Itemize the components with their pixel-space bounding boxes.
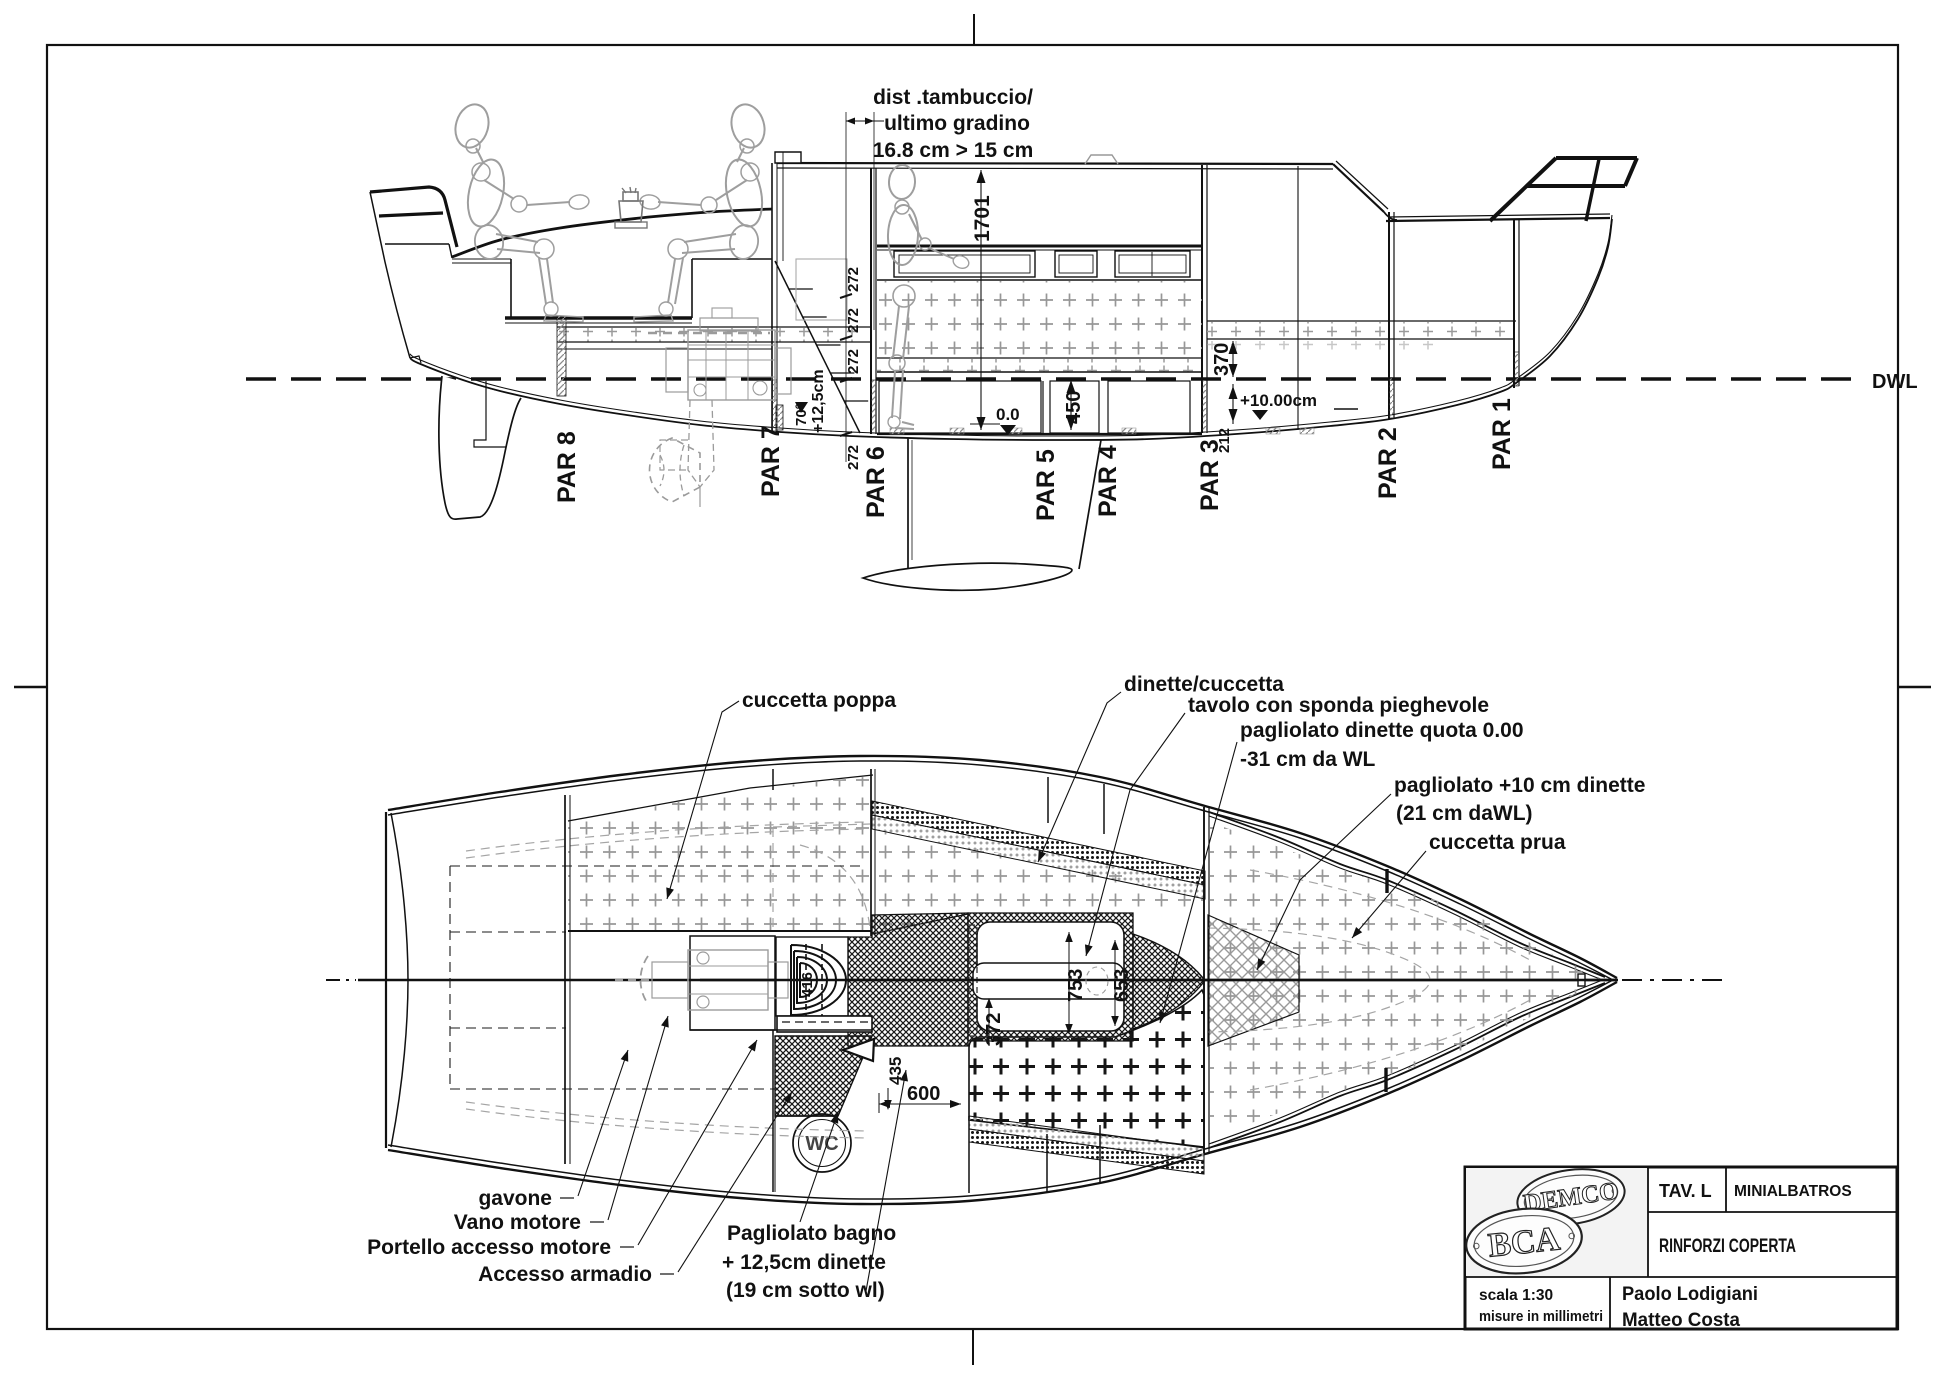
svg-text:cuccetta prua: cuccetta prua: [1429, 831, 1566, 854]
svg-text:ultimo gradino: ultimo gradino: [884, 112, 1030, 135]
svg-text:450: 450: [1063, 391, 1085, 424]
svg-text:(21 cm daWL): (21 cm daWL): [1396, 802, 1533, 825]
svg-text:70°: 70°: [793, 403, 810, 426]
svg-text:753: 753: [1065, 969, 1087, 1002]
svg-text:-31 cm da WL: -31 cm da WL: [1240, 748, 1376, 771]
svg-text:PAR 8: PAR 8: [553, 431, 581, 503]
svg-text:Vano motore: Vano motore: [454, 1211, 581, 1234]
svg-text:PAR 5: PAR 5: [1032, 449, 1060, 521]
svg-text:gavone: gavone: [478, 1187, 552, 1210]
svg-text:PAR 4: PAR 4: [1094, 445, 1122, 517]
svg-text:misure in millimetri: misure in millimetri: [1479, 1309, 1603, 1325]
svg-text:0.0: 0.0: [996, 405, 1020, 424]
svg-text:+ 12,5cm dinette: + 12,5cm dinette: [722, 1251, 886, 1274]
svg-text:scala 1:30: scala 1:30: [1479, 1287, 1553, 1304]
svg-text:cuccetta poppa: cuccetta poppa: [742, 689, 896, 712]
svg-text:272: 272: [845, 349, 862, 374]
svg-text:416: 416: [799, 972, 816, 997]
svg-text:Paolo Lodigiani: Paolo Lodigiani: [1622, 1284, 1758, 1305]
svg-text:PAR 6: PAR 6: [862, 446, 890, 518]
svg-text:PAR 7: PAR 7: [757, 425, 785, 497]
svg-text:370: 370: [1211, 343, 1233, 376]
svg-text:Pagliolato bagno: Pagliolato bagno: [727, 1222, 896, 1245]
svg-text:435: 435: [886, 1057, 905, 1085]
svg-text:MINIALBATROS: MINIALBATROS: [1734, 1183, 1852, 1200]
svg-text:Matteo Costa: Matteo Costa: [1622, 1310, 1740, 1331]
svg-text:272: 272: [845, 267, 862, 292]
svg-text:tavolo con sponda pieghevole: tavolo con sponda pieghevole: [1188, 694, 1489, 717]
svg-text:pagliolato +10 cm dinette: pagliolato +10 cm dinette: [1394, 774, 1645, 797]
svg-text:653: 653: [1111, 969, 1133, 1002]
svg-text:272: 272: [845, 445, 862, 470]
svg-text:1701: 1701: [971, 195, 994, 242]
svg-text:(19 cm sotto wl): (19 cm sotto wl): [726, 1279, 885, 1302]
svg-text:+10.00cm: +10.00cm: [1240, 391, 1317, 410]
svg-text:dist .tambuccio/: dist .tambuccio/: [873, 86, 1033, 109]
svg-text:PAR 3: PAR 3: [1196, 439, 1224, 511]
svg-text:dinette/cuccetta: dinette/cuccetta: [1124, 673, 1284, 696]
svg-text:BCA: BCA: [1487, 1220, 1563, 1264]
svg-text:272: 272: [845, 308, 862, 333]
svg-text:372: 372: [983, 1013, 1005, 1046]
svg-text:RINFORZI COPERTA: RINFORZI COPERTA: [1659, 1236, 1796, 1257]
svg-text:600: 600: [907, 1083, 940, 1105]
svg-text:+12,5cm: +12,5cm: [810, 369, 827, 433]
svg-text:16.8 cm > 15 cm: 16.8 cm > 15 cm: [873, 139, 1034, 162]
svg-text:pagliolato dinette quota 0.00: pagliolato dinette quota 0.00: [1240, 719, 1524, 742]
svg-text:Accesso armadio: Accesso armadio: [478, 1263, 652, 1286]
svg-text:PAR 2: PAR 2: [1374, 427, 1402, 499]
svg-text:DWL: DWL: [1872, 371, 1918, 393]
svg-text:Portello accesso motore: Portello accesso motore: [367, 1236, 611, 1259]
svg-text:TAV. L: TAV. L: [1659, 1181, 1712, 1201]
svg-text:PAR 1: PAR 1: [1488, 398, 1516, 470]
